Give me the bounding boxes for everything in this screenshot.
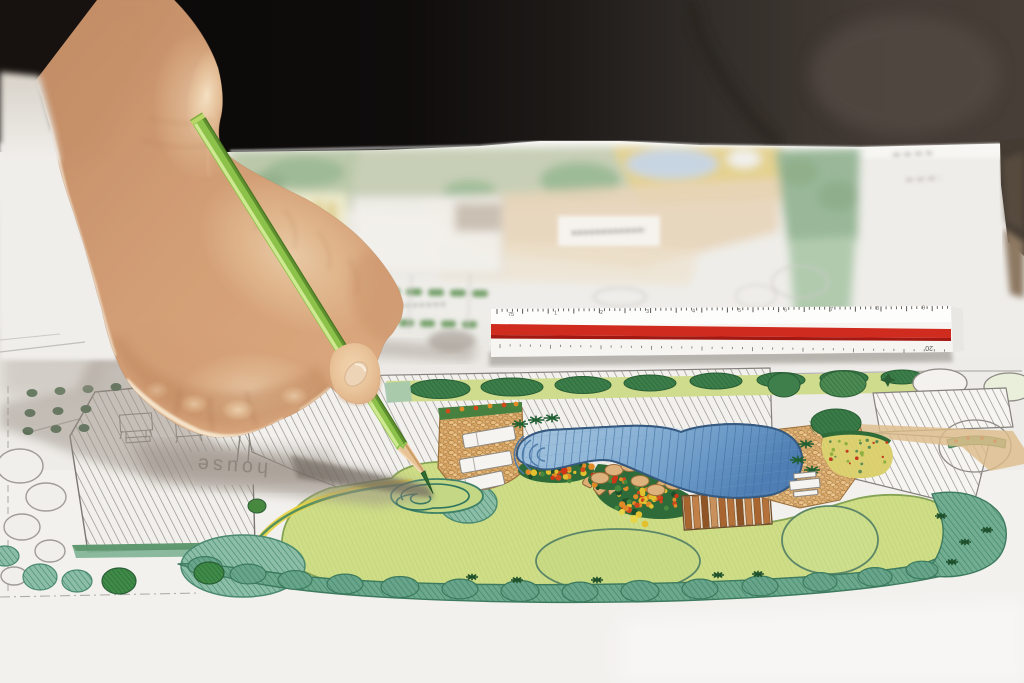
svg-text:3: 3 bbox=[646, 309, 649, 315]
svg-text:6: 6 bbox=[784, 307, 787, 313]
svg-text:5: 5 bbox=[738, 308, 741, 314]
svg-text:1: 1 bbox=[554, 310, 557, 316]
svg-text:4: 4 bbox=[692, 309, 695, 315]
svg-text:2: 2 bbox=[600, 310, 603, 316]
svg-text:20: 20 bbox=[925, 344, 933, 351]
svg-text:75: 75 bbox=[508, 312, 514, 318]
svg-text:7: 7 bbox=[830, 307, 833, 313]
svg-text:9: 9 bbox=[922, 306, 925, 312]
svg-text:8: 8 bbox=[876, 306, 879, 312]
